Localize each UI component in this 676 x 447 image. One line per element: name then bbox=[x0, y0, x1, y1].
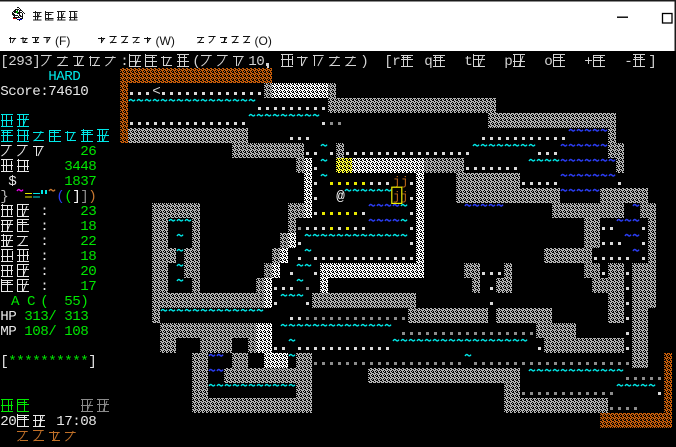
svg-text:o: o bbox=[544, 54, 553, 70]
svg-text:18: 18 bbox=[80, 219, 97, 235]
svg-text:): ) bbox=[88, 189, 97, 205]
svg-text:): ) bbox=[360, 54, 369, 70]
svg-text:**********: ********** bbox=[8, 354, 89, 370]
svg-text:3448: 3448 bbox=[64, 159, 97, 175]
svg-text::: : bbox=[40, 234, 49, 250]
svg-text::: : bbox=[40, 249, 49, 265]
svg-text:}: } bbox=[0, 189, 9, 205]
svg-text:22: 22 bbox=[80, 234, 97, 250]
svg-text::: : bbox=[40, 204, 49, 220]
svg-text:r: r bbox=[392, 54, 401, 70]
svg-text:313: 313 bbox=[64, 309, 89, 325]
svg-text:C: C bbox=[27, 294, 36, 310]
svg-text:(W): (W) bbox=[156, 34, 175, 48]
svg-text:]: ] bbox=[648, 54, 657, 70]
svg-text::: : bbox=[40, 264, 49, 280]
svg-text:[293]: [293] bbox=[0, 54, 41, 70]
svg-text:+: + bbox=[584, 54, 593, 70]
svg-text:Score:74610: Score:74610 bbox=[0, 84, 89, 100]
svg-text:23: 23 bbox=[80, 204, 97, 220]
svg-text:17:08: 17:08 bbox=[56, 414, 97, 430]
svg-text:18: 18 bbox=[80, 249, 97, 265]
svg-text:17: 17 bbox=[80, 279, 97, 295]
svg-text:A: A bbox=[11, 294, 20, 310]
svg-text:108: 108 bbox=[64, 324, 89, 340]
svg-text:HARD: HARD bbox=[48, 69, 81, 85]
svg-text:108/: 108/ bbox=[24, 324, 57, 340]
svg-text:p: p bbox=[504, 54, 513, 70]
svg-text:$: $ bbox=[8, 174, 17, 190]
svg-text:-: - bbox=[624, 54, 633, 70]
svg-text::: : bbox=[40, 279, 49, 295]
svg-text:20: 20 bbox=[80, 264, 97, 280]
svg-text:t: t bbox=[464, 54, 473, 70]
svg-text:=: = bbox=[32, 189, 41, 205]
svg-text:20: 20 bbox=[0, 414, 17, 430]
svg-text::: : bbox=[120, 54, 129, 70]
svg-text:26: 26 bbox=[80, 144, 97, 160]
svg-text:(F): (F) bbox=[55, 34, 70, 48]
svg-text:<: < bbox=[152, 84, 161, 100]
svg-text:10: 10 bbox=[248, 54, 265, 70]
svg-text:(: ( bbox=[192, 54, 201, 70]
svg-text:(O): (O) bbox=[255, 34, 272, 48]
svg-text:]: ] bbox=[88, 354, 97, 370]
svg-text:313/: 313/ bbox=[24, 309, 57, 325]
svg-text:HP: HP bbox=[0, 309, 17, 325]
svg-text:q: q bbox=[424, 54, 433, 70]
svg-text:MP: MP bbox=[0, 324, 17, 340]
svg-text:55): 55) bbox=[64, 294, 89, 310]
svg-text:@: @ bbox=[336, 189, 345, 205]
svg-text::: : bbox=[40, 219, 49, 235]
svg-text:j: j bbox=[393, 190, 400, 204]
svg-text:(: ( bbox=[40, 294, 49, 310]
svg-text:1837: 1837 bbox=[64, 174, 97, 190]
